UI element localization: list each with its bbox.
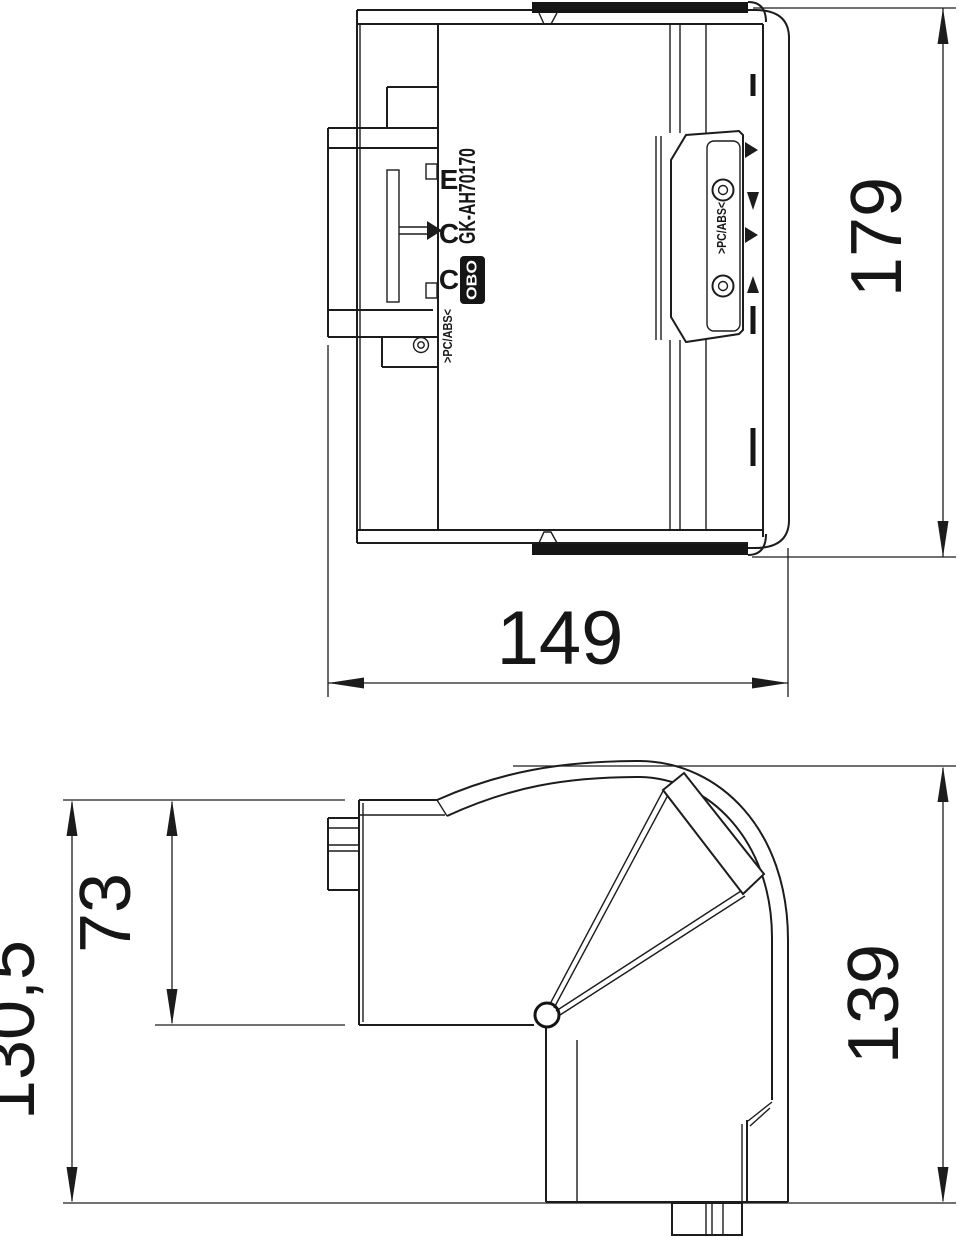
dim-179: 179 [752,8,956,557]
obo-logo: OBO [460,256,485,304]
cover-strip-bottom-cap [748,534,766,555]
flap-radial-lower [556,891,745,1015]
dim-139-value: 139 [834,944,914,1064]
flap-radial-upper [550,791,668,1008]
dim-179-arrow-down-icon [938,521,949,557]
material-label-left: >PC/ABS< [440,309,455,363]
cover-strip-top [532,2,766,24]
hinge-flap [535,773,764,1027]
dim-73-arrow-down-icon [167,989,178,1025]
technical-drawing-canvas: >PC/ABS< E C C GK-AH70170 OBO >PC/ABS< [0,0,960,1237]
arm-coupling-lines [328,828,359,851]
dim-149: 149 [328,345,788,697]
arm-cap-slant [437,800,447,816]
cover-strip-top-bar [532,2,748,13]
dim-139: 139 [513,766,956,1203]
coupling-notch [387,87,437,128]
technical-drawing-svg: >PC/ABS< E C C GK-AH70170 OBO >PC/ABS< [0,0,960,1237]
clip-arrow-icon-3 [745,227,758,243]
bottom-tabs-lines [706,1203,723,1235]
top-view: >PC/ABS< E C C GK-AH70170 OBO >PC/ABS< [328,2,956,697]
clip-arrow-icon-1 [745,142,758,158]
bottom-tabs [672,1203,742,1235]
dim-73: 73 [66,800,345,1025]
coupling-clip-bottom [426,283,437,298]
dim-130-5-arrow-up-icon [67,800,78,836]
dim-139-arrow-down-icon [938,1167,949,1203]
cover-strip-top-cap [748,2,766,22]
wall-thick-segment-1 [751,74,756,96]
guide-pin-shaft [399,227,427,234]
coupling-body [328,128,437,337]
dim-130-5: 130,5 [0,800,956,1203]
bottom-view: 130,5 73 139 [0,761,956,1235]
dim-149-arrow-right-icon [752,678,788,689]
down-duct [546,1027,788,1235]
latch-plate: >PC/ABS< [671,131,759,342]
dim-179-arrow-up-icon [938,8,949,44]
dim-139-arrow-up-icon [938,766,949,802]
clip-arrow-icon-4 [747,276,759,293]
coupling-plate [387,170,399,302]
flap-blade [663,773,764,894]
left-coupling [328,87,442,367]
coupling-screw-block [382,337,437,367]
mold-mark-3: C [439,264,459,295]
coupling-clip-top [426,164,437,179]
obo-logo-text: OBO [464,260,481,300]
wall-thick-segment-3 [751,428,756,466]
wall-thick-segment-2 [751,306,756,334]
dim-130-5-arrow-down-icon [67,1167,78,1203]
dim-73-value: 73 [66,873,146,953]
dim-149-arrow-left-icon [328,678,364,689]
pivot-circle [535,1003,559,1027]
clip-arrow-icon-2 [747,192,759,210]
material-label-right: >PC/ABS< [714,202,729,254]
latch-side-lines [656,136,661,340]
dim-179-value: 179 [837,177,917,297]
horizontal-arm [328,800,534,1025]
cover-clip-top-icon [539,13,557,24]
dim-130-5-value: 130,5 [0,940,50,1120]
dim-149-value: 149 [497,596,624,681]
screw-icon-inner [418,342,424,348]
screw-icon-outer [414,338,429,353]
cover-strip-bottom-bar [532,544,748,555]
product-code-label: GK-AH70170 [454,148,480,244]
dim-73-arrow-up-icon [167,800,178,836]
arm-coupling-block [328,818,359,890]
cover-clip-bottom-icon [539,532,557,543]
product-markings: E C C GK-AH70170 OBO >PC/ABS< [439,148,485,363]
corner-cover-end-cap [748,1102,772,1126]
